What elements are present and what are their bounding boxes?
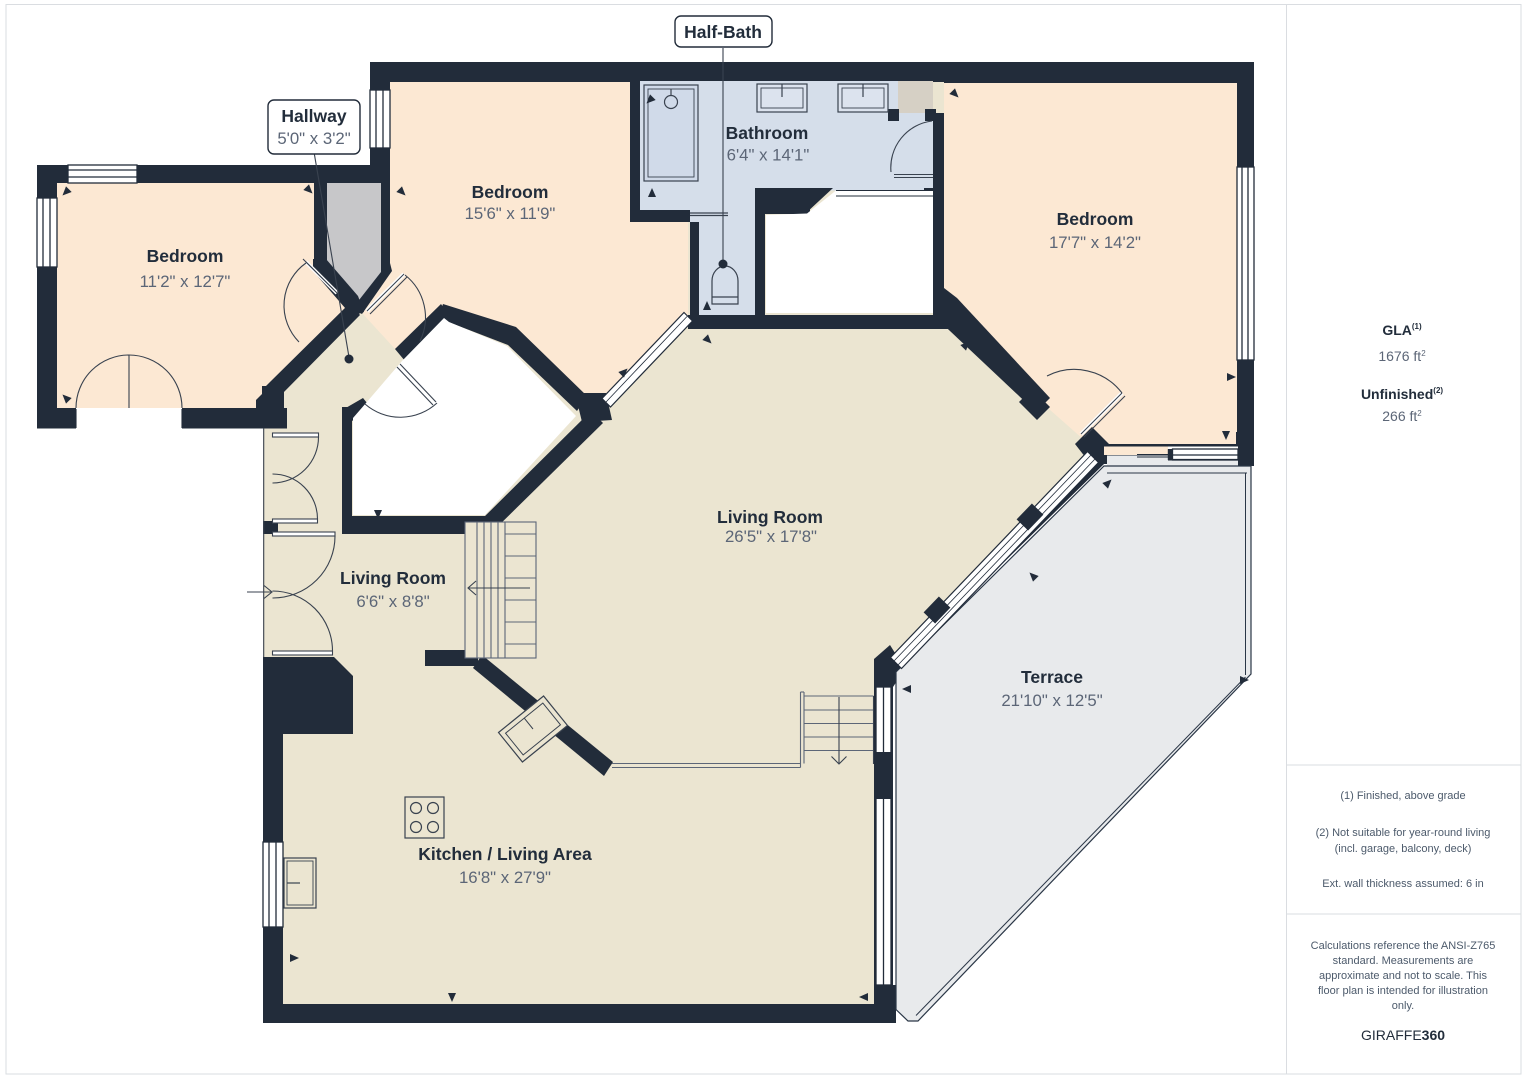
svg-text:Bedroom: Bedroom [147,246,224,266]
svg-text:Kitchen / Living Area: Kitchen / Living Area [418,844,592,864]
svg-text:11'2" x 12'7": 11'2" x 12'7" [140,272,231,291]
svg-text:266 ft2: 266 ft2 [1382,408,1422,424]
svg-text:1676 ft2: 1676 ft2 [1378,348,1426,364]
svg-text:Hallway: Hallway [281,106,346,126]
svg-text:Ext. wall thickness assumed: 6: Ext. wall thickness assumed: 6 in [1322,878,1483,890]
svg-text:(1) Finished, above grade: (1) Finished, above grade [1340,790,1465,802]
svg-text:6'4" x 14'1": 6'4" x 14'1" [727,146,810,165]
svg-text:6'6" x 8'8": 6'6" x 8'8" [356,592,429,611]
svg-text:15'6" x 11'9": 15'6" x 11'9" [465,204,556,223]
svg-text:Calculations reference the ANS: Calculations reference the ANSI-Z765 [1311,940,1496,952]
svg-text:Half-Bath: Half-Bath [684,22,762,42]
svg-text:Bedroom: Bedroom [472,182,549,202]
svg-text:GIRAFFE360: GIRAFFE360 [1361,1027,1445,1043]
svg-text:Unfinished(2): Unfinished(2) [1361,386,1443,402]
svg-text:Living Room: Living Room [717,507,823,527]
svg-text:(2) Not suitable for year-roun: (2) Not suitable for year-round living [1316,827,1491,839]
svg-text:26'5" x 17'8": 26'5" x 17'8" [725,527,817,546]
svg-text:17'7" x 14'2": 17'7" x 14'2" [1049,233,1141,252]
svg-text:(incl. garage, balcony, deck): (incl. garage, balcony, deck) [1335,843,1472,855]
svg-text:approximate and not to scale.: approximate and not to scale. This [1319,970,1487,982]
svg-text:5'0" x 3'2": 5'0" x 3'2" [277,129,350,148]
svg-text:floor plan is intended for ill: floor plan is intended for illustration [1318,985,1488,997]
svg-text:Terrace: Terrace [1021,667,1083,687]
svg-text:Bedroom: Bedroom [1057,209,1134,229]
svg-text:21'10" x 12'5": 21'10" x 12'5" [1001,691,1102,710]
svg-text:standard. Measurements are: standard. Measurements are [1333,955,1474,967]
svg-text:16'8" x 27'9": 16'8" x 27'9" [459,868,551,887]
svg-text:Bathroom: Bathroom [726,123,809,143]
svg-text:only.: only. [1392,1000,1414,1012]
svg-text:Living Room: Living Room [340,568,446,588]
